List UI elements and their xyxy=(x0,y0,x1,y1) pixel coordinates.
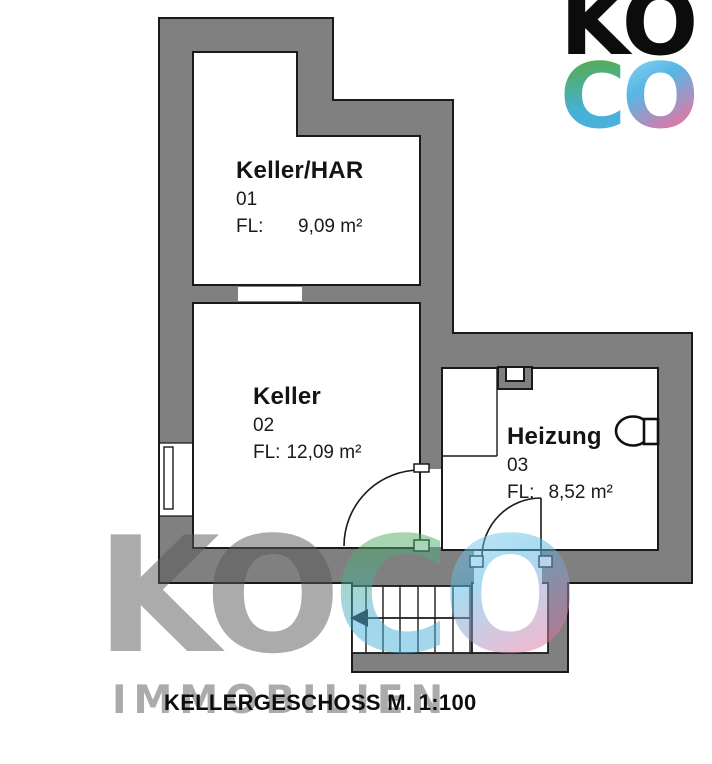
room-number: 02 xyxy=(253,416,361,435)
room-name: Heizung xyxy=(507,425,613,449)
stairs-area xyxy=(352,586,472,653)
koco-logo: KO CO xyxy=(560,0,695,134)
room-label-heizung: Heizung 03 FL:8,52 m² xyxy=(507,425,613,502)
room-label-keller-har: Keller/HAR 01 FL:9,09 m² xyxy=(236,159,363,236)
plan-caption: KELLERGESCHOSS M. 1:100 xyxy=(164,690,477,716)
floor-plan-page: KOCO IMMOBILIEN Keller/HAR 01 FL:9,09 m²… xyxy=(0,0,712,764)
room-label-keller: Keller 02 FL:12,09 m² xyxy=(253,385,361,462)
area-label: FL: xyxy=(236,217,298,236)
area-value: 9,09 m² xyxy=(298,216,362,237)
logo-o: O xyxy=(622,44,695,149)
room-number: 01 xyxy=(236,190,363,209)
window-left xyxy=(159,443,192,516)
heater-icon xyxy=(616,417,658,446)
area-value: 12,09 m² xyxy=(286,442,361,463)
passage-opening xyxy=(238,287,302,301)
area-value: 8,52 m² xyxy=(548,482,612,503)
room-name: Keller xyxy=(253,385,361,409)
stair-landing xyxy=(472,583,548,653)
room-number: 03 xyxy=(507,456,613,475)
area-label: FL: xyxy=(253,443,280,462)
chimney xyxy=(498,367,532,389)
area-label: FL: xyxy=(507,483,534,502)
logo-c: C xyxy=(560,44,622,149)
room-name: Keller/HAR xyxy=(236,159,363,183)
